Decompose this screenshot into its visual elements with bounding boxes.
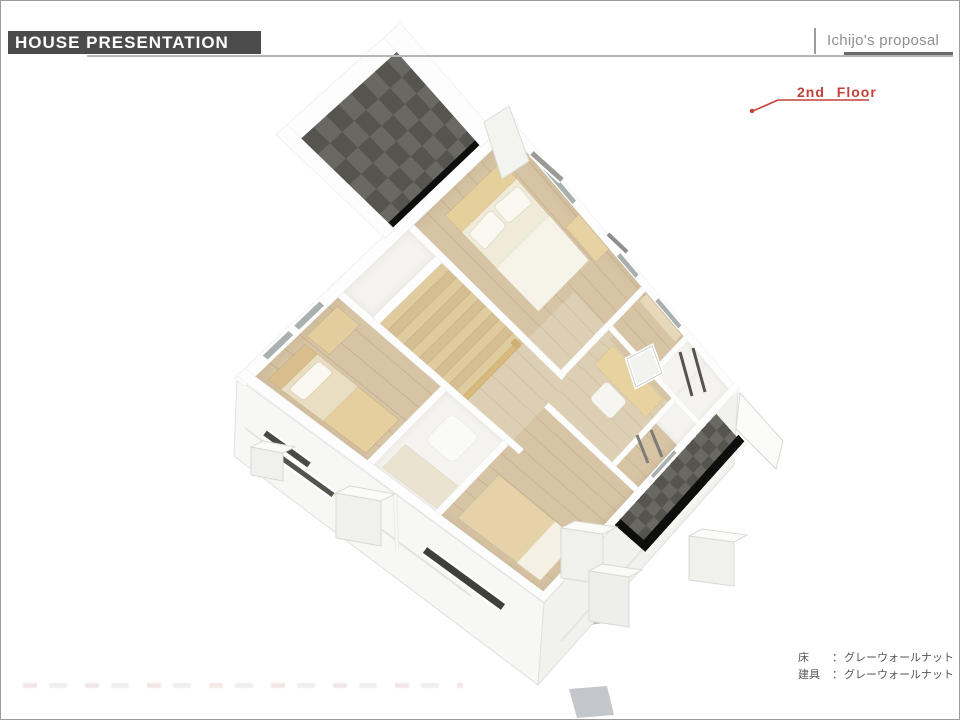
ac-unit	[589, 564, 642, 627]
page-title: HOUSE PRESENTATION	[8, 31, 261, 54]
window	[627, 346, 662, 387]
floor-label-leader-line	[750, 100, 869, 113]
legend-value: グレーウォールナット	[844, 651, 954, 664]
window	[651, 430, 662, 457]
legend-value: グレーウォールナット	[844, 668, 954, 681]
window	[608, 234, 627, 252]
legend-label: 床	[798, 651, 832, 664]
legend-label: 建具	[798, 668, 832, 681]
floorplan-3d-render	[1, 1, 959, 719]
presentation-slide: HOUSE PRESENTATION Ichijo's proposal 2nd…	[0, 0, 960, 720]
header-vertical-separator	[814, 28, 816, 54]
legend-row-floor: 床 ： グレーウォールナット	[798, 651, 954, 664]
window	[532, 153, 562, 180]
header-rule	[87, 55, 953, 57]
window	[637, 435, 648, 463]
balcony-divider-wall-face	[484, 106, 529, 179]
floor-label: 2nd Floor	[797, 84, 877, 100]
materials-legend: 床 ： グレーウォールナット 建具 ： グレーウォールナット	[798, 651, 954, 685]
header-rule-dark-segment	[844, 52, 953, 55]
proposal-label: Ichijo's proposal	[827, 32, 957, 50]
window	[693, 348, 705, 392]
ac-unit	[336, 486, 395, 546]
ac-unit	[689, 529, 747, 586]
ac-unit	[251, 441, 295, 481]
window	[680, 352, 692, 396]
legend-colon: ：	[832, 651, 844, 664]
legend-row-fittings: 建具 ： グレーウォールナット	[798, 668, 954, 681]
legend-colon: ：	[832, 668, 844, 681]
detail-overlay-graphic	[1, 1, 959, 719]
